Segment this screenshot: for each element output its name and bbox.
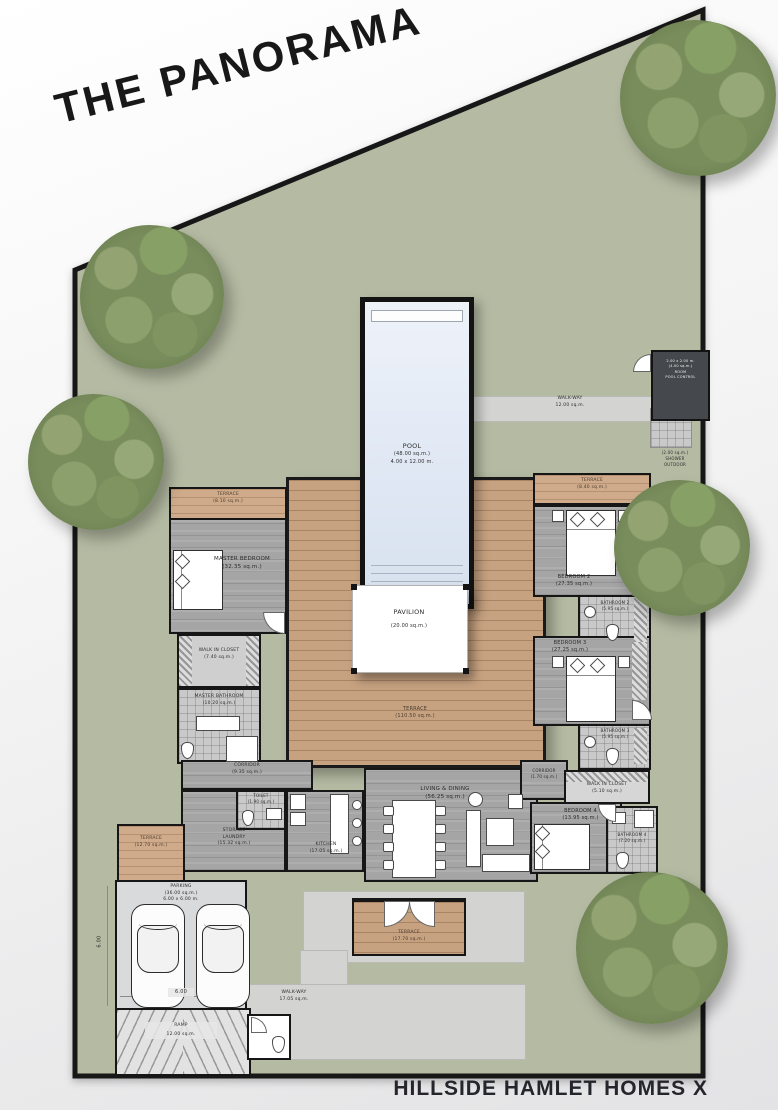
bathroom3-label: BATHROOM 3 (5.95 sq.m.) [580,728,650,740]
dimension-parking-height: 6.00 [96,930,103,954]
oven [290,812,306,826]
vanity [196,716,240,731]
stool [352,818,362,828]
living-dining-label: LIVING & DINING (56.25 sq.m.) [390,786,500,802]
coffee-table [486,818,514,846]
tree [620,20,776,176]
parking-label: PARKING (36.00 sq.m.) 6.00 x 6.00 m. [115,884,247,904]
kitchen-label: KITCHEN (17.05 sq.m.) [298,842,354,855]
tree [576,872,728,1024]
tree [28,394,164,530]
terrace-left [117,824,185,882]
closet-strip [632,642,647,700]
walkway-bottom-label: WALK-WAY 17.05 sq.m. [262,990,326,1003]
storage-laundry-label: STORAGE LAUNDRY (15.32 sq.m.) [186,828,282,848]
chaise [482,854,530,872]
master-wic-label: WALK IN CLOSET (7.40 sq.m.) [177,648,261,661]
master-terrace-label: TERRACE (8.10 sq.m.) [169,492,287,505]
corridor-right-label: CORRIDOR (1.70 sq.m.) [518,768,570,780]
car [196,904,250,1008]
bedroom2-label: BEDROOM 2 (27.35 sq.m.) [534,574,614,589]
pool-control-room: 2.00 x 2.00 m. (4.00 sq.m.) ROOM POOL CO… [651,350,710,421]
tree [614,480,750,616]
main-terrace-label: TERRACE (110.50 sq.m.) [355,706,475,721]
wic4-label: WALK IN CLOSET (5.10 sq.m.) [564,782,650,795]
corridor-left-label: CORRIDOR (9.35 sq.m.) [181,763,313,776]
bedroom4-label: BEDROOM 4 (13.95 sq.m.) [538,808,623,823]
stool [352,800,362,810]
fridge [290,794,306,810]
dining-table [392,800,436,878]
master-bathroom-label: MASTER BATHROOM (10.20 sq.m.) [177,694,261,707]
pool-edge-band [371,310,463,322]
toilet-room-label: TOILET (1.90 sq.m.) [236,793,286,805]
corridor-right [520,760,568,800]
ramp [115,1008,251,1076]
dimension-parking-width: 6.00 [168,988,194,997]
sofa [466,810,481,867]
swimming-pool: POOL (48.00 sq.m.) 4.00 x 12.00 m. [360,297,474,609]
pavilion: PAVILION (20.00 sq.m.) [352,585,468,673]
dimension-line [107,886,108,1006]
outdoor-shower-label: (2.00 sq.m.) SHOWER OUTDOOR [648,450,702,467]
side-table [508,794,523,809]
floor-plan-poster: THE PANORAMA WALK-WAY 12.00 sq.m. WALK-W… [0,0,778,1110]
bathroom4-label: BATHROOM 4 (7.20 sq.m.) [606,832,658,844]
pool-label: POOL (48.00 sq.m.) 4.00 x 12.00 m. [365,442,459,466]
nightstand [552,510,564,522]
terrace-bottom-label: TERRACE (17.70 sq.m.) [352,930,466,943]
shower-tray [226,736,258,762]
ramp-label: RAMP 12.00 sq.m. [145,1022,217,1039]
bedroom3-label: BEDROOM 3 (27.25 sq.m.) [534,640,606,655]
terrace-left-label: TERRACE (12.70 sq.m.) [117,836,185,849]
pavilion-label: PAVILION (20.00 sq.m.) [353,608,465,631]
master-bedroom-label: MASTER BEDROOM (32.35 sq.m.) [200,556,284,572]
nightstand [552,656,564,668]
nightstand [618,656,630,668]
walkway-top-label: WALK-WAY 12.00 sq.m. [538,396,602,409]
shower-tray [634,810,654,828]
terrace-right-label: TERRACE (8.40 sq.m.) [533,478,651,491]
brand-footer: HILLSIDE HAMLET HOMES X [300,1077,708,1101]
tree [80,225,224,369]
sink [266,808,282,820]
